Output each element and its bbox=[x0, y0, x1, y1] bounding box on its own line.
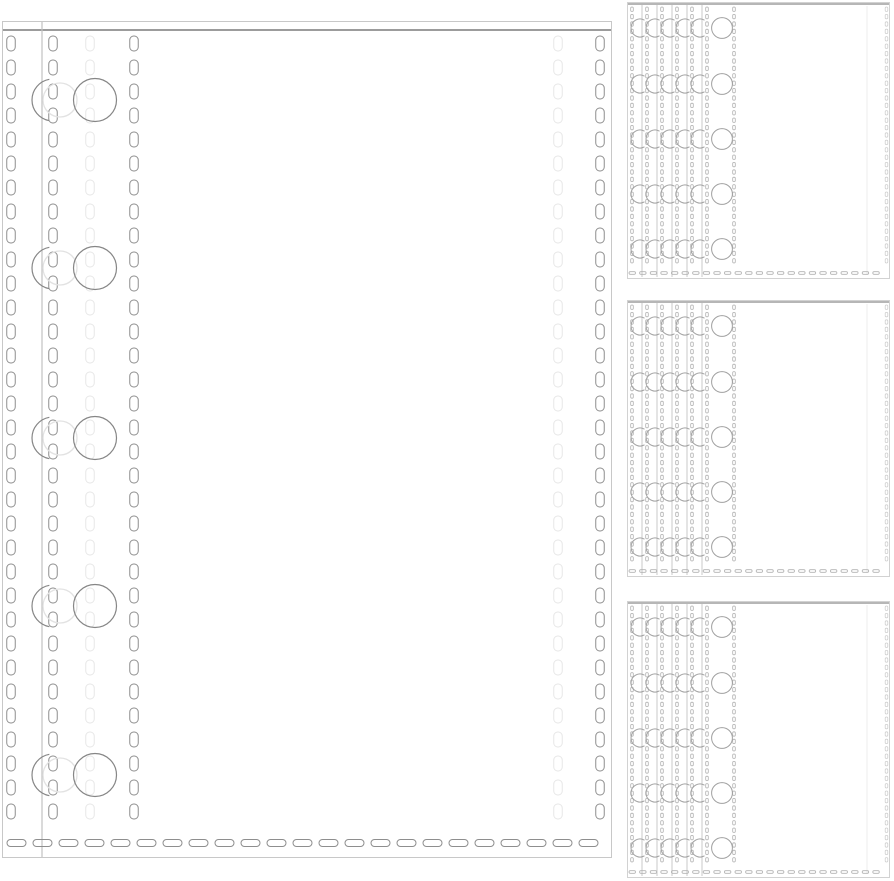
sheet-protector-stack-2 bbox=[628, 301, 890, 577]
sheet-outline bbox=[3, 22, 612, 858]
stack-outline bbox=[628, 301, 890, 577]
stack-outline bbox=[628, 602, 890, 878]
sheet-protector-illustration bbox=[0, 0, 894, 881]
sheet-protector-stack-1 bbox=[628, 3, 890, 279]
stack-outline bbox=[628, 3, 890, 279]
large-sheet-protector bbox=[3, 22, 612, 858]
product-image-canvas bbox=[0, 0, 894, 881]
sheet-protector-stack-3 bbox=[628, 602, 890, 878]
